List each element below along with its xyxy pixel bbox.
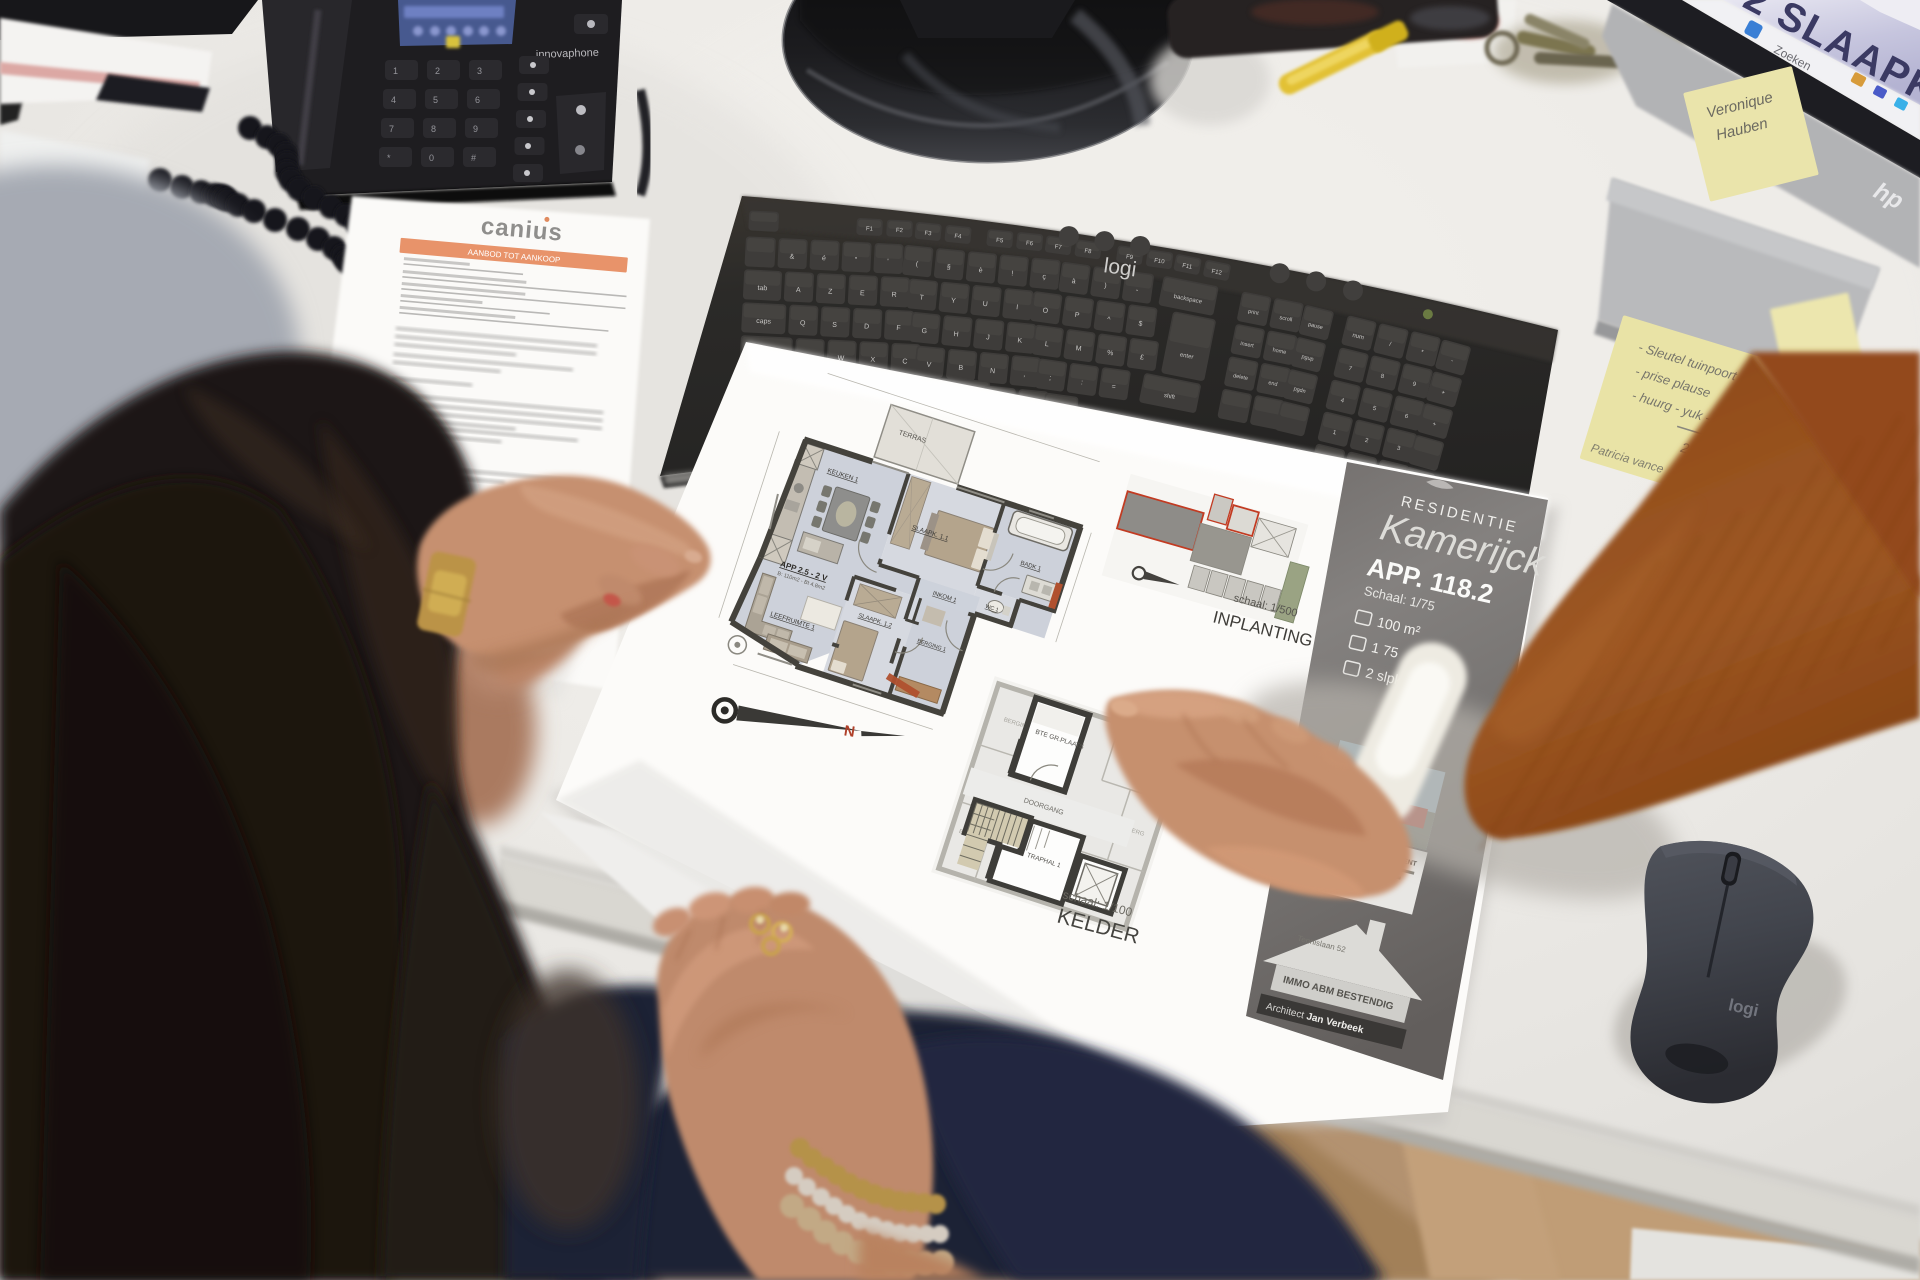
svg-text:H: H xyxy=(953,331,959,338)
svg-text:6: 6 xyxy=(475,95,480,105)
svg-text:1: 1 xyxy=(393,66,398,76)
svg-text:F2: F2 xyxy=(896,228,904,234)
svg-text:M: M xyxy=(1075,345,1082,353)
svg-text:tab: tab xyxy=(757,285,767,292)
svg-text:7: 7 xyxy=(389,124,394,134)
svg-text:9: 9 xyxy=(473,124,478,134)
svg-text:S: S xyxy=(832,322,837,329)
svg-text:D: D xyxy=(864,323,869,330)
svg-text:0: 0 xyxy=(429,153,434,163)
svg-text:F: F xyxy=(896,325,901,332)
svg-text:R: R xyxy=(891,292,896,299)
svg-text:F3: F3 xyxy=(924,231,932,238)
svg-text:C: C xyxy=(902,358,907,365)
svg-text:F4: F4 xyxy=(954,234,962,241)
svg-text:Q: Q xyxy=(800,320,806,327)
svg-text:5: 5 xyxy=(433,95,438,105)
svg-text:E: E xyxy=(860,290,865,297)
svg-text:J: J xyxy=(986,334,990,341)
svg-text:A: A xyxy=(796,287,801,294)
svg-text:U: U xyxy=(982,301,988,308)
svg-text:8: 8 xyxy=(431,124,436,134)
svg-text:è: è xyxy=(978,267,983,274)
svg-text:§: § xyxy=(946,264,951,271)
svg-text:logi: logi xyxy=(1102,254,1138,281)
svg-text:#: # xyxy=(471,153,476,163)
svg-text:F5: F5 xyxy=(996,238,1004,245)
svg-text:&: & xyxy=(789,253,794,260)
svg-text:N: N xyxy=(990,368,996,375)
svg-text:4: 4 xyxy=(391,95,396,105)
svg-text:2: 2 xyxy=(435,66,440,76)
svg-text:caps: caps xyxy=(756,318,772,326)
svg-text:%: % xyxy=(1107,350,1114,358)
svg-text:*: * xyxy=(387,153,391,163)
svg-text:F1: F1 xyxy=(866,226,874,232)
svg-text:é: é xyxy=(822,255,826,262)
svg-text:3: 3 xyxy=(477,66,482,76)
svg-text:F6: F6 xyxy=(1026,241,1034,248)
svg-text:G: G xyxy=(921,328,927,336)
svg-text:X: X xyxy=(870,357,875,364)
